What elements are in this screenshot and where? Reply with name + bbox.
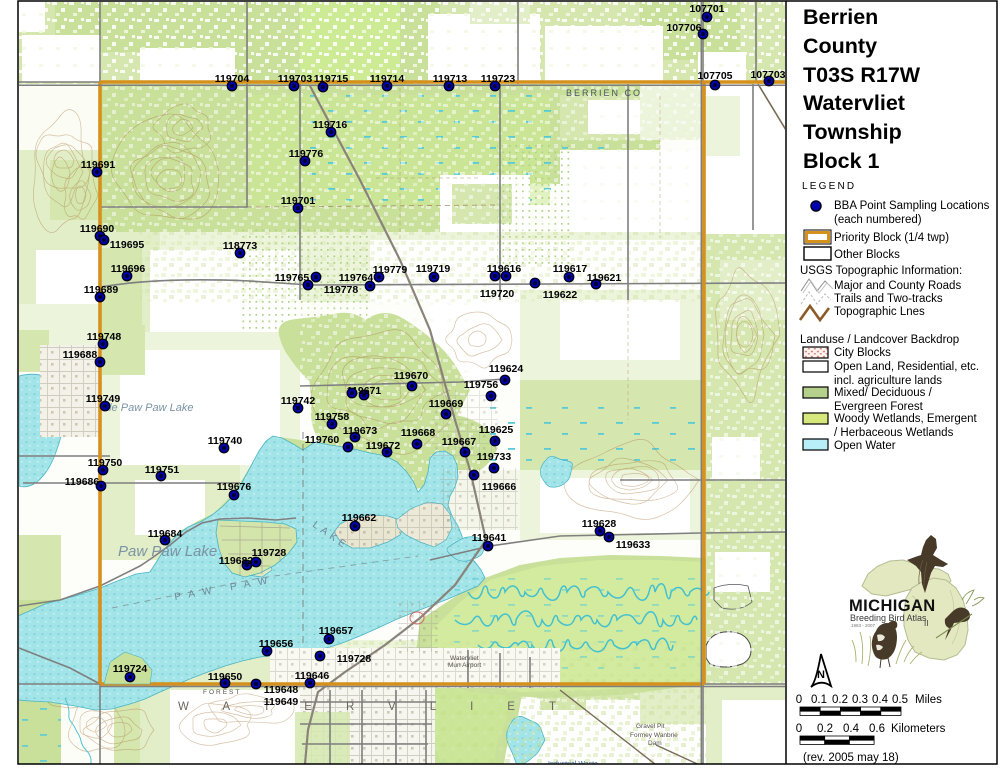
svg-text:119748: 119748 bbox=[87, 331, 122, 343]
svg-text:Priority Block (1/4 twp): Priority Block (1/4 twp) bbox=[834, 232, 949, 244]
svg-text:Block 1: Block 1 bbox=[803, 149, 880, 173]
svg-text:119690: 119690 bbox=[80, 223, 115, 235]
svg-text:119764: 119764 bbox=[339, 272, 374, 284]
svg-text:Evergreen Forest: Evergreen Forest bbox=[834, 401, 924, 413]
svg-text:119670: 119670 bbox=[394, 370, 429, 382]
svg-text:Woody Wetlands, Emergent: Woody Wetlands, Emergent bbox=[834, 413, 978, 425]
svg-text:119728: 119728 bbox=[337, 653, 372, 665]
svg-text:119689: 119689 bbox=[84, 284, 119, 296]
svg-text:Topographic Lnes: Topographic Lnes bbox=[834, 306, 925, 318]
svg-text:119650: 119650 bbox=[208, 671, 243, 683]
svg-text:119695: 119695 bbox=[110, 239, 145, 251]
svg-text:Landuse / Landcover Backdrop: Landuse / Landcover Backdrop bbox=[800, 334, 959, 346]
svg-text:Mixed/ Deciduous /: Mixed/ Deciduous / bbox=[834, 387, 933, 399]
svg-text:119714: 119714 bbox=[370, 73, 405, 85]
svg-text:(each numbered): (each numbered) bbox=[834, 214, 922, 226]
svg-text:0.4: 0.4 bbox=[872, 694, 889, 706]
svg-text:Breeding Bird Atlas: Breeding Bird Atlas bbox=[850, 613, 927, 623]
svg-text:LEGEND: LEGEND bbox=[802, 181, 856, 192]
svg-text:N: N bbox=[817, 669, 825, 681]
svg-text:119701: 119701 bbox=[281, 195, 316, 207]
svg-text:0.1: 0.1 bbox=[811, 694, 827, 706]
svg-text:/ Herbaceous Wetlands: / Herbaceous Wetlands bbox=[834, 427, 954, 439]
svg-text:119751: 119751 bbox=[145, 464, 180, 476]
svg-text:119742: 119742 bbox=[281, 395, 316, 407]
svg-text:Berrien: Berrien bbox=[803, 5, 878, 29]
svg-text:119749: 119749 bbox=[86, 393, 121, 405]
svg-text:119646: 119646 bbox=[295, 670, 330, 682]
svg-text:119673: 119673 bbox=[343, 425, 378, 437]
svg-text:119733: 119733 bbox=[477, 451, 512, 463]
svg-text:(rev. 2005 may 18): (rev. 2005 may 18) bbox=[803, 752, 899, 764]
svg-text:Open Water: Open Water bbox=[834, 440, 896, 452]
svg-text:USGS Topographic Information:: USGS Topographic Information: bbox=[800, 265, 962, 277]
svg-text:119624: 119624 bbox=[489, 363, 524, 375]
svg-text:Watervliet: Watervliet bbox=[803, 91, 905, 115]
svg-text:119765: 119765 bbox=[275, 272, 310, 284]
svg-text:118773: 118773 bbox=[223, 240, 258, 252]
svg-text:Miles: Miles bbox=[915, 694, 942, 706]
svg-text:119617: 119617 bbox=[553, 263, 588, 275]
svg-text:incl. agriculture lands: incl. agriculture lands bbox=[834, 375, 942, 387]
svg-text:119760: 119760 bbox=[305, 434, 340, 446]
svg-text:119719: 119719 bbox=[416, 263, 451, 275]
svg-text:BERRIEN CO: BERRIEN CO bbox=[566, 88, 642, 98]
svg-text:1983 - 2007: 1983 - 2007 bbox=[851, 623, 876, 628]
svg-text:0.3: 0.3 bbox=[852, 694, 868, 706]
svg-text:119703: 119703 bbox=[278, 73, 313, 85]
svg-text:119723: 119723 bbox=[481, 73, 516, 85]
svg-text:107705: 107705 bbox=[697, 70, 732, 82]
svg-text:119668: 119668 bbox=[401, 427, 436, 439]
svg-text:119662: 119662 bbox=[342, 512, 377, 524]
svg-text:119724: 119724 bbox=[113, 663, 148, 675]
svg-text:107706: 107706 bbox=[666, 22, 701, 34]
svg-text:119682: 119682 bbox=[219, 555, 254, 567]
svg-text:119621: 119621 bbox=[587, 272, 622, 284]
svg-text:119758: 119758 bbox=[315, 411, 350, 423]
svg-text:119633: 119633 bbox=[616, 539, 651, 551]
svg-text:Watervliet: Watervliet bbox=[450, 655, 479, 662]
svg-text:119696: 119696 bbox=[111, 263, 146, 275]
svg-text:119776: 119776 bbox=[289, 148, 324, 160]
svg-text:119672: 119672 bbox=[366, 440, 401, 452]
svg-text:WATERVLIET: WATERVLIET bbox=[178, 701, 590, 713]
svg-text:119684: 119684 bbox=[148, 528, 183, 540]
svg-text:119720: 119720 bbox=[480, 288, 515, 300]
svg-text:119750: 119750 bbox=[88, 457, 123, 469]
svg-text:119778: 119778 bbox=[324, 284, 359, 296]
svg-text:119669: 119669 bbox=[429, 398, 464, 410]
svg-text:Formey Wanbrie: Formey Wanbrie bbox=[630, 732, 678, 739]
svg-text:Trails and Two-tracks: Trails and Two-tracks bbox=[834, 293, 943, 305]
svg-text:0.6: 0.6 bbox=[869, 723, 885, 735]
svg-text:Major and County Roads: Major and County Roads bbox=[834, 280, 961, 292]
svg-text:Mun Airport: Mun Airport bbox=[448, 662, 481, 669]
svg-text:107701: 107701 bbox=[689, 3, 724, 15]
svg-text:0: 0 bbox=[796, 694, 802, 706]
svg-text:Kilometers: Kilometers bbox=[891, 723, 946, 735]
svg-text:Open Land, Residential, etc.: Open Land, Residential, etc. bbox=[834, 361, 979, 373]
svg-text:0.5: 0.5 bbox=[892, 694, 908, 706]
svg-text:107703: 107703 bbox=[750, 69, 785, 81]
svg-text:119715: 119715 bbox=[314, 73, 349, 85]
svg-text:119622: 119622 bbox=[543, 289, 578, 301]
svg-text:119779: 119779 bbox=[373, 264, 408, 276]
svg-text:II: II bbox=[924, 619, 928, 628]
svg-text:119716: 119716 bbox=[313, 119, 348, 131]
svg-text:City Blocks: City Blocks bbox=[834, 347, 891, 359]
svg-text:0.2: 0.2 bbox=[817, 723, 833, 735]
svg-text:0: 0 bbox=[796, 723, 802, 735]
svg-text:119641: 119641 bbox=[472, 532, 507, 544]
svg-text:0.2: 0.2 bbox=[832, 694, 848, 706]
svg-text:119756: 119756 bbox=[464, 379, 499, 391]
svg-text:119688: 119688 bbox=[63, 349, 98, 361]
svg-text:Paw Paw Lake: Paw Paw Lake bbox=[118, 543, 217, 560]
svg-text:119625: 119625 bbox=[479, 424, 514, 436]
svg-text:Dam: Dam bbox=[648, 740, 662, 747]
svg-text:FOREST: FOREST bbox=[203, 689, 241, 696]
svg-text:119656: 119656 bbox=[259, 638, 294, 650]
svg-text:0.4: 0.4 bbox=[843, 723, 860, 735]
svg-text:Other Blocks: Other Blocks bbox=[834, 249, 900, 261]
svg-text:119740: 119740 bbox=[208, 435, 243, 447]
svg-text:119704: 119704 bbox=[215, 73, 250, 85]
svg-text:119628: 119628 bbox=[582, 518, 617, 530]
svg-text:BBA Point Sampling Locations: BBA Point Sampling Locations bbox=[834, 200, 990, 212]
svg-text:119686: 119686 bbox=[65, 476, 100, 488]
svg-text:119676: 119676 bbox=[217, 481, 252, 493]
svg-text:119648: 119648 bbox=[264, 684, 299, 696]
svg-text:119667: 119667 bbox=[442, 436, 477, 448]
svg-text:119713: 119713 bbox=[433, 73, 468, 85]
svg-text:County: County bbox=[803, 34, 877, 58]
svg-text:119728: 119728 bbox=[252, 547, 287, 559]
svg-text:Gravel Pit: Gravel Pit bbox=[636, 723, 665, 730]
svg-text:Township: Township bbox=[803, 120, 902, 144]
svg-text:119649: 119649 bbox=[264, 696, 299, 708]
svg-text:119691: 119691 bbox=[81, 159, 116, 171]
svg-text:119657: 119657 bbox=[319, 625, 354, 637]
svg-text:T03S R17W: T03S R17W bbox=[803, 63, 921, 87]
svg-text:119666: 119666 bbox=[482, 481, 517, 493]
